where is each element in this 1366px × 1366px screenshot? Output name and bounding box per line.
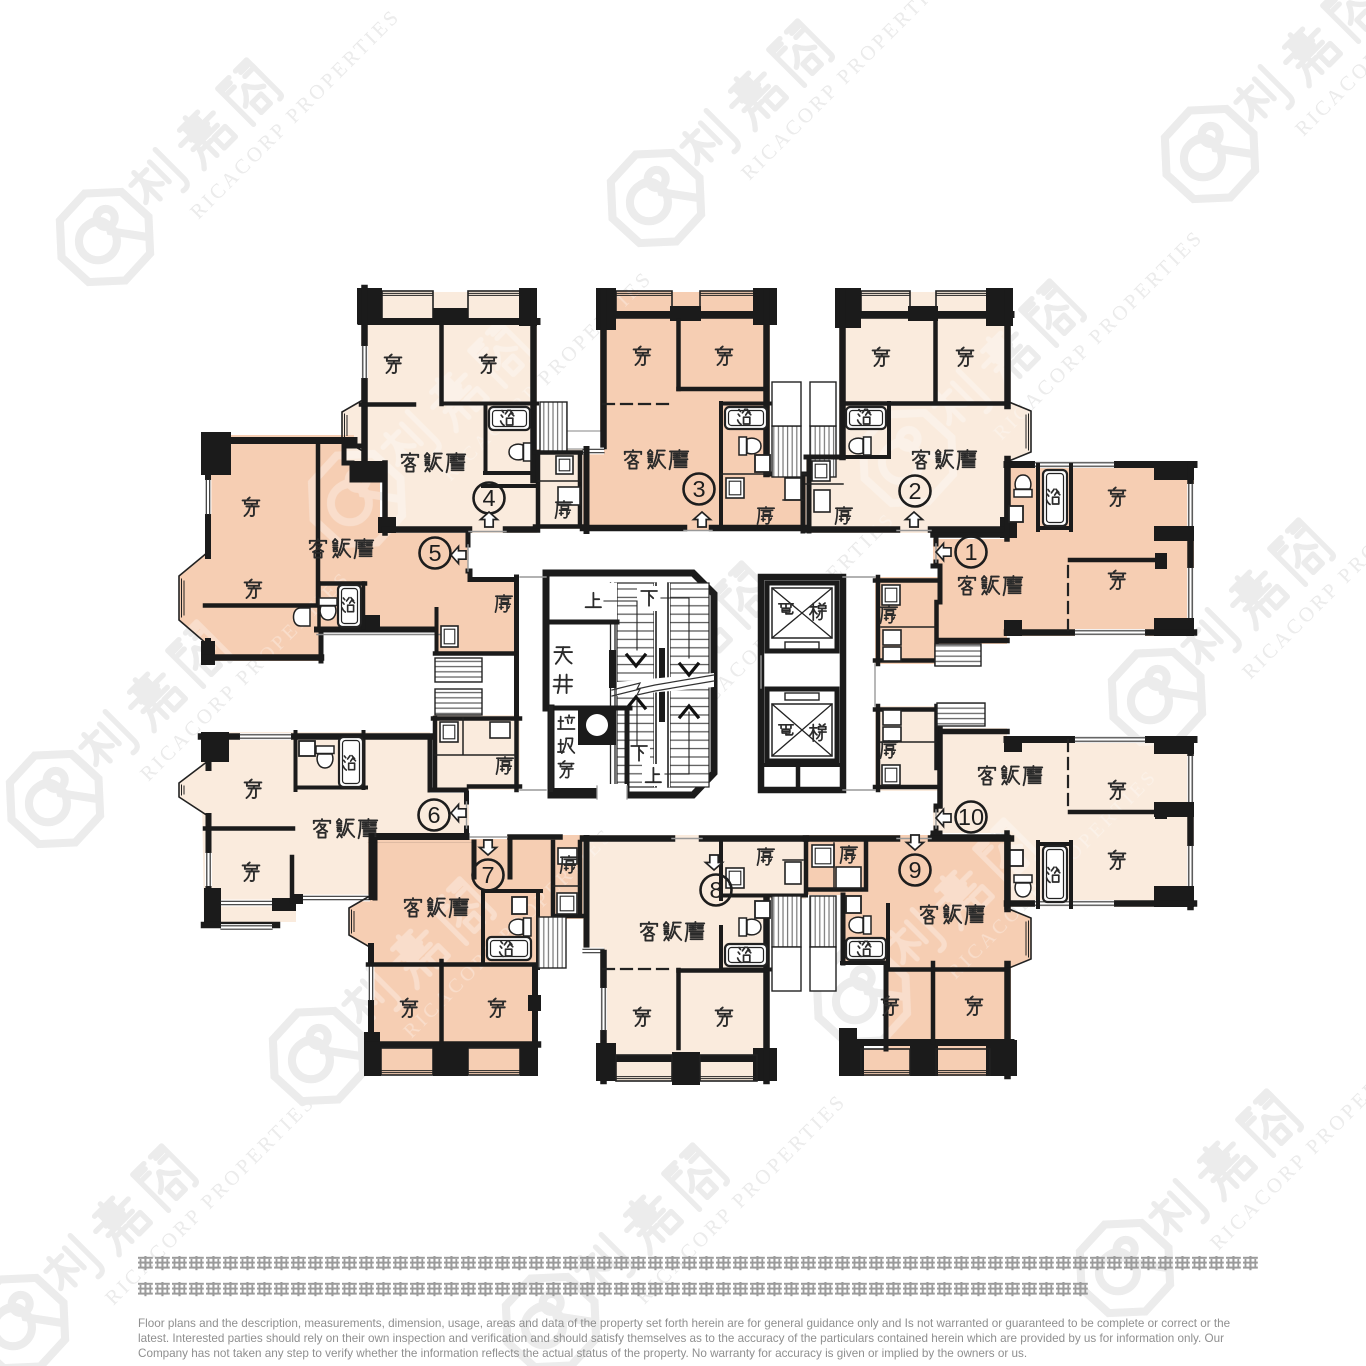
svg-text:6: 6 [427,802,440,828]
svg-text:2: 2 [908,478,921,504]
svg-text:Company has not taken any step: Company has not taken any step to verify… [138,1347,1027,1360]
svg-text:9: 9 [908,857,921,883]
svg-text:3: 3 [692,476,705,502]
svg-text:Floor plans and the descriptio: Floor plans and the description, measure… [138,1317,1230,1330]
svg-text:latest. Interested parties sho: latest. Interested parties should rely o… [138,1332,1224,1345]
svg-text:4: 4 [482,485,495,511]
svg-text:10: 10 [958,804,984,830]
svg-text:7: 7 [481,862,494,888]
svg-text:8: 8 [709,877,722,903]
svg-text:1: 1 [964,539,977,565]
svg-text:5: 5 [428,540,441,566]
